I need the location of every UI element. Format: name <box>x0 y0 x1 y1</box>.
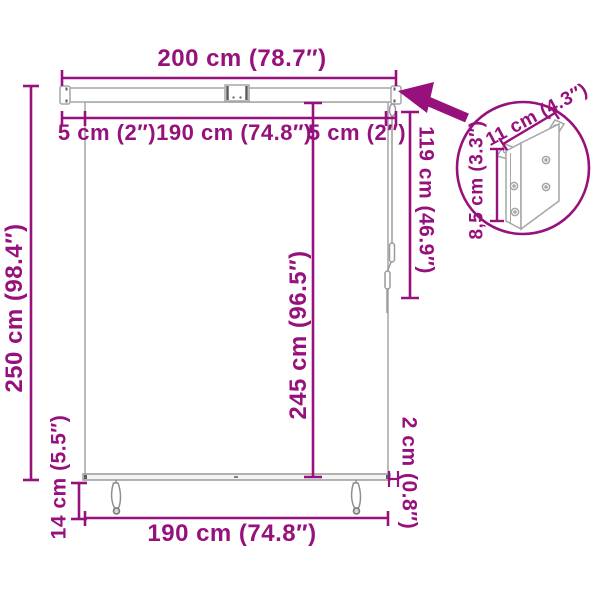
dim-label-drop-height: 245 cm (96.5″) <box>287 250 311 419</box>
dim-label-gap-left: 5 cm (2″) <box>58 122 156 144</box>
dim-label-inner-width: 190 cm (74.8″) <box>156 122 312 144</box>
fabric-panel <box>85 102 388 475</box>
dim-label-gap-right: 5 cm (2″) <box>308 122 406 144</box>
dim-label-total-width: 200 cm (78.7″) <box>157 47 326 71</box>
dim-line-total-width <box>62 70 396 86</box>
dim-label-bracket-depth: 8,5 cm (3.3″) <box>468 120 487 239</box>
top-bar-endcap-right <box>391 86 401 104</box>
dim-label-handle-offset: 14 cm (5.5″) <box>49 415 70 540</box>
bottom-rail <box>83 474 390 480</box>
dimension-diagram: 200 cm (78.7″) 5 cm (2″) 190 cm (74.8″) … <box>0 0 600 600</box>
dim-label-side-offset: 2 cm (0.8″) <box>399 417 420 529</box>
dim-label-cord-length: 119 cm (46.9″) <box>416 126 437 274</box>
dim-label-total-height: 250 cm (98.4″) <box>3 223 27 392</box>
roller-blind-drawing <box>60 85 401 514</box>
dim-label-bottom-width: 190 cm (74.8″) <box>147 522 316 546</box>
pull-handle-right <box>352 480 361 514</box>
pull-handle-left <box>112 480 121 514</box>
top-bar-endcap-left <box>60 86 70 104</box>
center-clip <box>225 85 249 101</box>
